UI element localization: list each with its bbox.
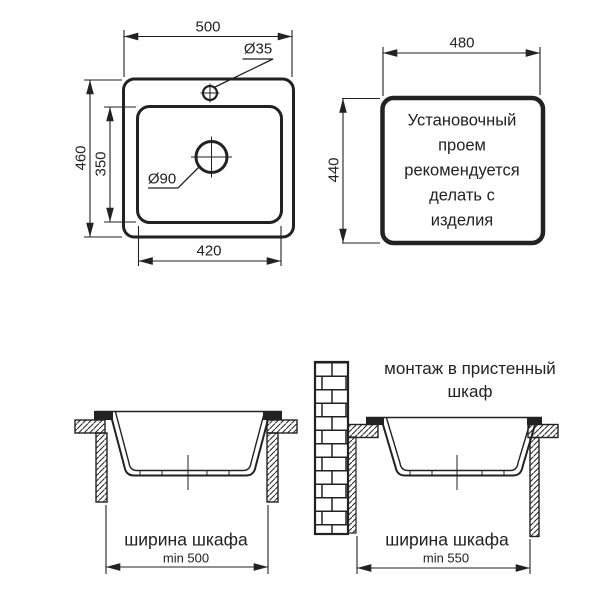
bowl-outline [138,107,282,223]
bowl-section-inner [116,412,265,471]
drawing-linework [0,0,600,600]
dim-label-480: 480 [449,36,474,51]
dim-label-420: 420 [196,244,221,259]
technical-drawing: 500 Ø35 460 350 Ø90 420 480 440 Установо… [0,0,600,600]
drain-crosshair [191,137,232,178]
countertop-left [348,425,378,438]
faucet-leader-line [214,59,273,88]
cabinet-back-panel [348,437,356,533]
dim-label-440: 440 [327,157,342,182]
brick-wall [315,362,348,534]
dim-label-faucet-diameter: Ø35 [244,42,272,57]
wall-mount-title: монтаж в пристенный шкаф [350,357,590,403]
dim-label-460: 460 [74,145,89,170]
bowl-section-outer [110,412,270,476]
cabinet-wall-right [530,438,539,537]
dim-label-drain-diameter: Ø90 [148,172,176,187]
dim-label-350: 350 [94,151,109,176]
cabinet-width-label-wall: ширина шкафа [385,531,509,549]
dim-label-500: 500 [195,20,220,35]
cabinet-width-min-550: min 550 [423,552,469,565]
cabinet-width-label: ширина шкафа [124,531,248,549]
cabinet-wall-right [267,433,278,502]
countertop-right [267,420,297,433]
cabinet-wall-left [96,433,107,502]
cutout-note: Установочный проем рекомендуется делать … [377,109,547,234]
rim-flange-right [263,411,282,420]
cabinet-width-min-500: min 500 [163,552,209,565]
sink-outline [124,79,294,237]
bowl-section-outer [381,418,537,476]
bowl-section-inner [387,418,532,471]
countertop-left [75,420,105,433]
plan-view [84,30,294,266]
